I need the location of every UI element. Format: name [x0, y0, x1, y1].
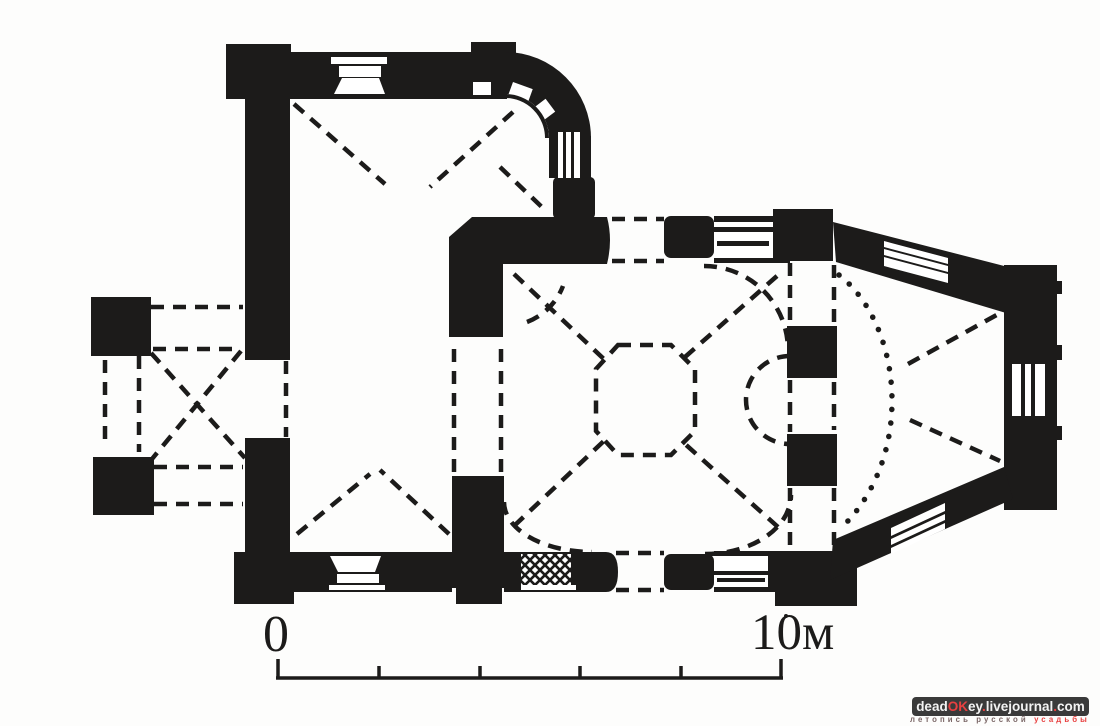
svg-text:0: 0 — [263, 606, 289, 663]
svg-text:10м: 10м — [751, 605, 834, 661]
